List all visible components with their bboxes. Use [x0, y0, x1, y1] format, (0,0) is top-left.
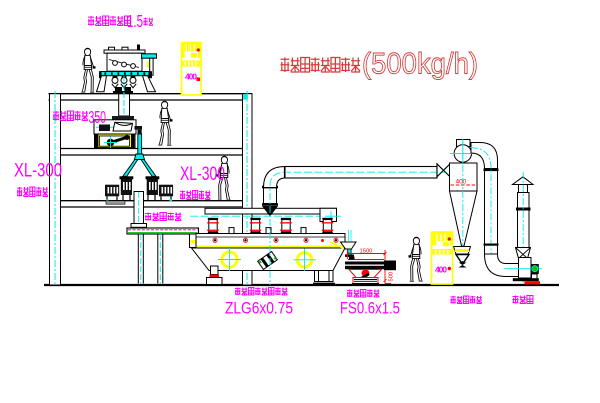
svg-text:1.5: 1.5 [127, 11, 143, 31]
svg-text:XL-300: XL-300 [180, 163, 225, 185]
svg-text:(500kg/h): (500kg/h) [362, 48, 478, 81]
svg-text:1500: 1500 [360, 249, 373, 255]
svg-text:400: 400 [435, 265, 447, 275]
svg-text:350: 350 [89, 107, 107, 127]
svg-text:XL-300: XL-300 [14, 160, 62, 182]
svg-text:400: 400 [456, 179, 467, 186]
svg-text:400: 400 [185, 72, 197, 82]
svg-text:FS0.6x1.5: FS0.6x1.5 [340, 300, 400, 318]
svg-text:ZLG6x0.75: ZLG6x0.75 [225, 300, 293, 318]
svg-text:500: 500 [389, 272, 395, 282]
